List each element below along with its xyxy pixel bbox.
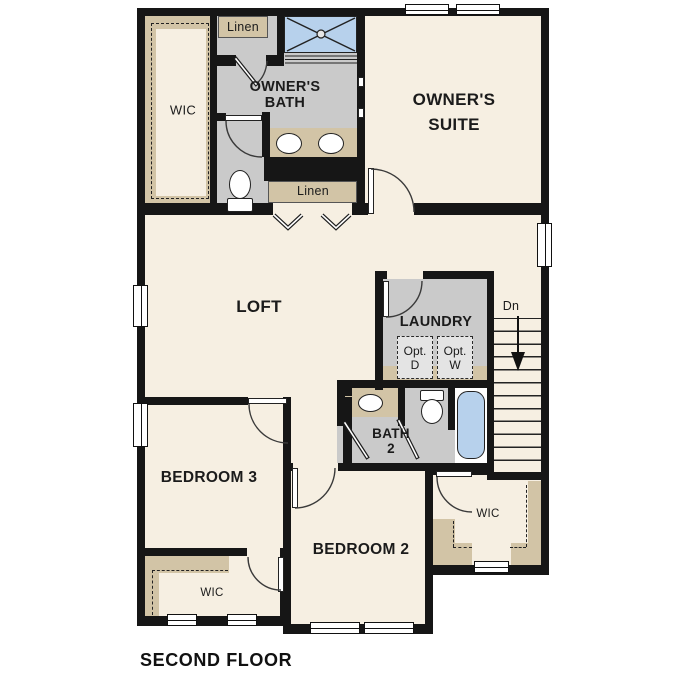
closet-rod-dashed [526, 485, 527, 547]
room-label-owners-wic: WIC [170, 103, 196, 118]
window [537, 223, 552, 267]
room-label-owners-suite: OWNER'S SUITE [413, 87, 496, 137]
room-label-bedroom3: BEDROOM 3 [161, 469, 258, 487]
wall [414, 203, 541, 215]
sink-basin [318, 133, 344, 154]
closet-rod-dashed [453, 547, 472, 548]
exterior-mask [433, 575, 549, 635]
room-label-loft: LOFT [236, 297, 282, 317]
door-leaf-bedroom2-wic [436, 471, 472, 477]
room-label-linen-upper: Linen [227, 20, 259, 34]
door-leaf-owners-suite [368, 168, 374, 214]
toilet-tank [227, 198, 253, 212]
closet-rod-dashed [510, 547, 526, 548]
sink-basin [358, 394, 383, 412]
wall [425, 463, 433, 634]
closet-rod-dashed [152, 570, 153, 615]
wall [210, 113, 226, 121]
bathtub [457, 391, 485, 459]
wall [338, 463, 494, 471]
wall [288, 397, 291, 405]
window [405, 4, 449, 15]
sink-basin [276, 133, 302, 154]
room-label-bath2: BATH 2 [372, 426, 410, 456]
wall [262, 112, 270, 157]
stair-treads [494, 318, 541, 473]
door-leaf-bedroom3-wic [278, 557, 284, 592]
door-leaf-laundry [383, 281, 389, 317]
wall [541, 8, 549, 575]
toilet-bowl [229, 170, 251, 199]
door-leaf-toilet-room [225, 115, 262, 121]
window [364, 622, 414, 634]
window [474, 561, 509, 573]
wall-niche [358, 77, 364, 87]
shower-pan [284, 16, 357, 53]
wall [264, 157, 357, 181]
stairs-down-label: Dn [503, 299, 520, 313]
wall [448, 388, 455, 430]
wall [375, 271, 383, 390]
wall [337, 380, 494, 388]
wall [337, 388, 352, 396]
wall [487, 279, 494, 478]
window [133, 285, 148, 327]
floor-plan: OWNER'S BATH OWNER'S SUITE Linen Linen W… [0, 0, 687, 687]
wall [472, 467, 494, 475]
window [227, 614, 257, 626]
window [310, 622, 360, 634]
room-label-laundry: LAUNDRY [400, 314, 472, 330]
window [133, 403, 148, 447]
room-label-bedroom2: BEDROOM 2 [313, 541, 410, 559]
wall-niche [358, 108, 364, 118]
optional-washer-box: Opt. W [437, 336, 473, 379]
door-leaf-bedroom2 [292, 468, 298, 508]
door-leaf-bedroom3 [248, 398, 287, 404]
wall [343, 397, 352, 466]
window [167, 614, 197, 626]
room-label-owners-bath: OWNER'S BATH [250, 79, 321, 111]
wall [137, 397, 248, 405]
room-label-bedroom2-wic: WIC [476, 508, 499, 520]
room-label-bedroom3-wic: WIC [200, 587, 223, 599]
wall [137, 548, 247, 556]
closet-rod-dashed [453, 521, 454, 547]
wall [217, 55, 236, 66]
toilet-bowl [421, 399, 443, 424]
plan-title: SECOND FLOOR [140, 650, 292, 671]
window [456, 4, 500, 15]
wall [137, 616, 290, 626]
wall [266, 55, 283, 66]
wall [352, 203, 368, 215]
wall [423, 271, 494, 279]
optional-dryer-box: Opt. D [397, 336, 433, 379]
wall [398, 388, 405, 426]
closet-rod-dashed [152, 570, 228, 571]
room-label-linen-lower: Linen [297, 184, 329, 198]
wall [487, 472, 545, 480]
